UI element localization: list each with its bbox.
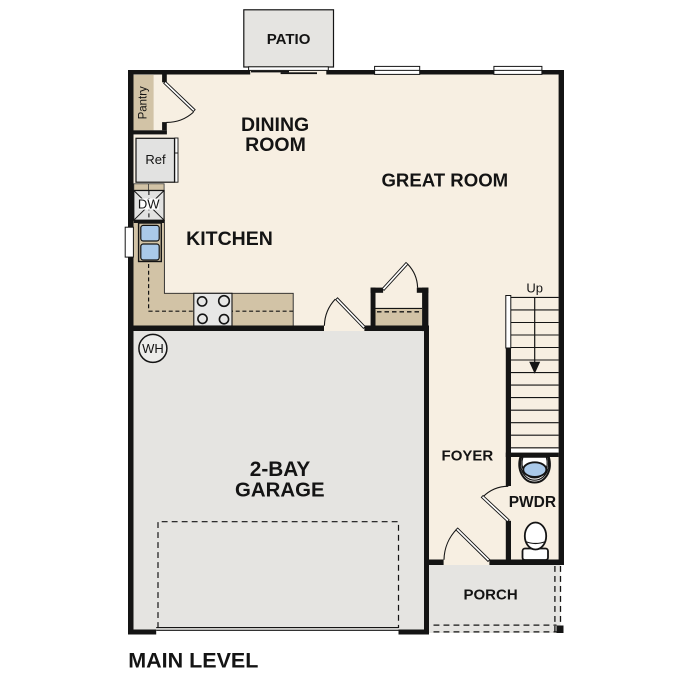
svg-text:2-BAY: 2-BAY bbox=[250, 458, 311, 481]
svg-text:GREAT ROOM: GREAT ROOM bbox=[381, 169, 508, 190]
svg-text:DINING: DINING bbox=[241, 114, 309, 136]
svg-text:GARAGE: GARAGE bbox=[235, 479, 325, 501]
svg-text:MAIN LEVEL: MAIN LEVEL bbox=[128, 648, 258, 672]
svg-text:Ref: Ref bbox=[145, 152, 166, 167]
svg-text:KITCHEN: KITCHEN bbox=[186, 228, 273, 250]
svg-text:Pantry: Pantry bbox=[137, 86, 149, 119]
svg-text:PORCH: PORCH bbox=[464, 587, 518, 604]
svg-text:ROOM: ROOM bbox=[245, 134, 306, 156]
svg-text:PWDR: PWDR bbox=[509, 494, 556, 511]
svg-text:WH: WH bbox=[142, 341, 164, 356]
svg-text:FOYER: FOYER bbox=[442, 448, 494, 465]
svg-text:PATIO: PATIO bbox=[267, 31, 311, 48]
svg-text:DW: DW bbox=[138, 197, 160, 212]
svg-text:Up: Up bbox=[526, 281, 543, 296]
